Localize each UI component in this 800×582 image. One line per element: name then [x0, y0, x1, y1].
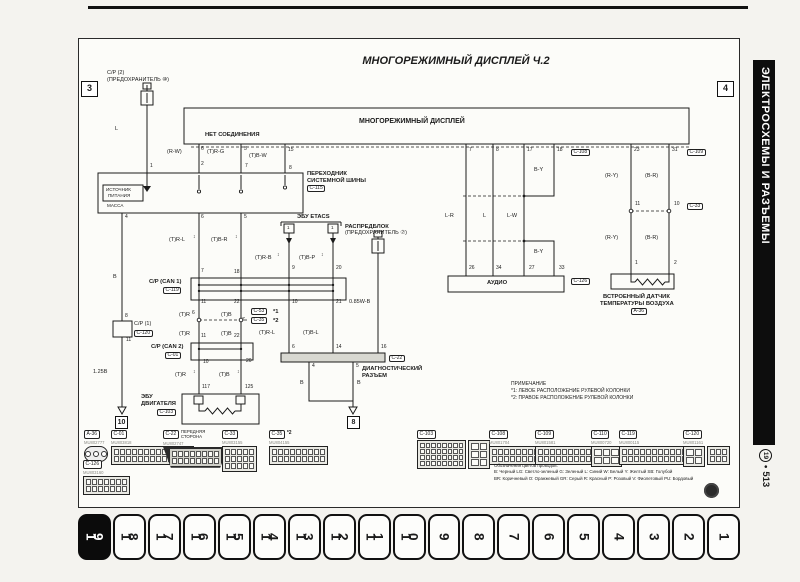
wire-label: 1: [287, 226, 290, 231]
connector-id: C-108: [489, 430, 508, 439]
connector-code: MU802777: [84, 440, 108, 445]
pin-number: 11: [635, 202, 640, 207]
connector-ref: C-35: [251, 317, 267, 324]
wire-label: (T)R: [179, 332, 190, 338]
connector-ref: C-53: [251, 308, 267, 315]
wire-label: C/P (CAN 1): [149, 279, 181, 285]
display-box-title: МНОГОРЕЖИМНЫЙ ДИСПЛЕЙ: [359, 118, 465, 125]
wire-label: L: [115, 127, 118, 133]
pin-number: 10: [674, 202, 680, 207]
pin-number: 16: [381, 345, 387, 350]
ground-symbol-2: [349, 407, 357, 414]
pin-number: 6: [201, 147, 204, 152]
connector-C-120: C-120MU801161: [683, 430, 730, 467]
wire-label: (R-Y): [605, 174, 618, 180]
diagram-frame: МНОГОРЕЖИМНЫЙ ДИСПЛЕЙ Ч.2: [78, 38, 740, 508]
connector-ref: C-109: [687, 149, 706, 156]
page-tab-13: 13: [288, 514, 321, 560]
pin-number: 26: [469, 266, 475, 271]
display-box: [184, 108, 689, 144]
connector-id: C-126: [83, 460, 102, 469]
connector-pictogram: [222, 446, 257, 472]
connector-C-35: C-35*2MU804155: [269, 430, 328, 465]
wire-label: 1.25B: [93, 370, 107, 376]
page-reference: 19 • 513: [752, 449, 776, 509]
pin-number: 8: [125, 314, 128, 319]
connector-ref: A-36: [631, 308, 647, 315]
wire-label: (T)R: [175, 373, 186, 379]
pin-number: 7: [242, 318, 245, 323]
connector-note-ref: *2: [287, 430, 292, 436]
wire-label: (T)R-L: [169, 238, 185, 244]
pin-number: 4: [125, 215, 128, 220]
pin-number: 11: [126, 338, 131, 343]
connector-ref: C-126: [571, 278, 590, 285]
pin-number: 6: [201, 215, 204, 220]
wire-label: ↕: [237, 370, 240, 375]
wire-label: ТЕМПЕРАТУРЫ ВОЗДУХА: [600, 301, 674, 307]
cp1-box: [113, 321, 132, 337]
page-tab-6: 6: [532, 514, 565, 560]
chapter-number-circle: 19: [759, 449, 772, 462]
wire-label: L: [483, 214, 486, 220]
connector-C-126: C-126MU803160: [83, 460, 130, 495]
pin-number: 27: [529, 266, 535, 271]
grid-ref: 10: [115, 416, 128, 429]
connector-id: C-109: [535, 430, 554, 439]
pin-number: 7: [245, 164, 248, 169]
pin-number: 9: [292, 266, 295, 271]
pin-number: 17: [527, 148, 533, 153]
connector-code: MU803155: [222, 440, 257, 445]
pin-number: 21: [336, 300, 342, 305]
grid-ref: 4: [717, 81, 734, 97]
wire-label: МАССА: [107, 204, 123, 209]
wire-label: ↕: [235, 235, 238, 240]
page-tab-18: 18: [113, 514, 146, 560]
wire-label: B-Y: [534, 168, 543, 174]
page-tab-3: 3: [637, 514, 670, 560]
pin-number: 20: [336, 266, 342, 271]
page-tab-5: 5: [567, 514, 600, 560]
connector-id: A-36: [84, 430, 100, 439]
connector-pictogram: [163, 447, 228, 468]
wire-label: (B-R): [645, 174, 658, 180]
air-temp-sensor-box: [611, 274, 674, 289]
pin-number: 1: [635, 261, 638, 266]
wire-label: НЕТ СОЕДИНЕНИЯ: [205, 132, 260, 138]
pin-number: 117: [202, 385, 210, 390]
wire-label: (ПРЕДОХРАНИТЕЛЬ ⑦): [345, 231, 407, 237]
connector-code: MU803160: [83, 470, 130, 475]
pin-number: 11: [201, 300, 206, 305]
connector-id: C-103: [417, 430, 436, 439]
page-tab-2: 2: [672, 514, 705, 560]
wire-label: C/P (CAN 2): [151, 344, 183, 350]
wire-label: B: [357, 381, 361, 387]
diagnostic-connector-strip: [281, 353, 385, 362]
connector-pictogram: [269, 446, 328, 465]
connector-code: MU800720: [591, 440, 622, 445]
grid-ref: 3: [81, 81, 98, 97]
top-rule: [88, 6, 748, 9]
wire-label: (T)B-L: [303, 331, 319, 337]
wire-label: ↕: [193, 370, 196, 375]
note-title: ПРИМЕЧАНИЕ: [511, 381, 633, 388]
page-tab-15: 15: [218, 514, 251, 560]
wire-label: (T)B: [221, 313, 232, 319]
pin-number: 23: [634, 148, 640, 153]
pin-number: 6: [192, 311, 195, 316]
page-tab-10: 10: [393, 514, 426, 560]
connector-ref: C-120: [134, 330, 153, 337]
page-tab-16: 16: [183, 514, 216, 560]
manual-page: МНОГОРЕЖИМНЫЙ ДИСПЛЕЙ Ч.2: [0, 0, 800, 582]
wire-label: (T)R-G: [207, 150, 224, 156]
wire-label: *2: [273, 318, 278, 324]
wire-label: РАЗЪЕМ: [362, 373, 387, 379]
can2-box: [191, 343, 253, 360]
pin-number: 31: [672, 148, 678, 153]
chapter-sidebar-label: ЭЛЕКТРОСХЕМЫ И РАЗЪЕМЫ: [759, 67, 771, 244]
page-tab-17: 17: [148, 514, 181, 560]
connector-code: MU802747: [163, 441, 228, 446]
pin-number: 34: [496, 266, 502, 271]
pin-number: 8: [496, 148, 499, 153]
connector-ref: C-22: [389, 355, 405, 362]
wire-label: (R-W): [167, 150, 182, 156]
wire-color-legend: Обозначения цветов проводов: B: Черный L…: [494, 463, 729, 482]
chapter-sidebar: ЭЛЕКТРОСХЕМЫ И РАЗЪЕМЫ: [753, 60, 775, 445]
wire-label: ЭБУ ETACS: [297, 214, 330, 220]
pin-number: 2: [201, 162, 204, 167]
page-tab-9: 9: [428, 514, 461, 560]
page-tab-14: 14: [253, 514, 286, 560]
wire-label: 0.85W-B: [349, 300, 370, 306]
wire-label: ↕: [277, 253, 280, 258]
connector-id: C-01: [111, 430, 127, 439]
connector-id: C-33: [222, 430, 238, 439]
connector-id: C-120: [683, 430, 702, 439]
page-tab-11: 11: [358, 514, 391, 560]
wire-label: C/P (1): [134, 322, 151, 328]
connector-ref: C-01: [165, 352, 181, 359]
connector-C-103: C-103: [417, 430, 490, 469]
connector-C-33: C-33MU803155: [222, 430, 257, 472]
wire-label: B: [113, 275, 117, 281]
pin-number: 22: [234, 300, 240, 305]
wire-label: 1: [331, 226, 334, 231]
wire-label: B-Y: [534, 250, 543, 256]
pin-number: 8: [289, 166, 292, 171]
page-tab-1: 1: [707, 514, 740, 560]
pin-number: 10: [292, 300, 298, 305]
page-tab-12: 12: [323, 514, 356, 560]
ground-symbol: [118, 407, 126, 414]
page-tab-7: 7: [497, 514, 530, 560]
wire-label: ВСТРОЕННЫЙ ДАТЧИК: [603, 294, 670, 300]
page-tab-19: 19: [78, 514, 111, 560]
wire-label: (ПРЕДОХРАНИТЕЛЬ ⑩): [107, 78, 169, 84]
brand-logo-icon: [704, 483, 719, 498]
diode-symbol: [143, 186, 151, 192]
pin-number: 5: [244, 215, 247, 220]
pin-number: 22: [234, 334, 240, 339]
wire-label: ПЕРЕХОДНИК: [307, 171, 347, 177]
pin-number: 15: [288, 148, 294, 153]
wire-label: (T)R: [179, 313, 190, 319]
connector-A-36: A-36MU802777: [84, 430, 108, 462]
page-ref-number: 513: [760, 471, 771, 487]
connector-C-110: C-110MU800720: [591, 430, 622, 467]
pin-number: 5: [356, 364, 359, 369]
wire-label: (T)B: [221, 332, 232, 338]
connector-code: MU804155: [269, 440, 328, 445]
grid-ref: 8: [347, 416, 360, 429]
wire-label: (T)R-B: [255, 256, 272, 262]
wire-label: (T)R-L: [259, 331, 275, 337]
connector-ref: C-108: [571, 149, 590, 156]
wire-label: ПИТАНИЯ: [108, 194, 130, 199]
wire-label: (T)B-W: [249, 154, 267, 160]
pin-number: 18: [234, 270, 240, 275]
pin-number: 1: [150, 164, 153, 169]
wire-label: L-W: [507, 214, 517, 220]
page-index-tabs: 19181716151413121110987654321: [78, 514, 740, 560]
wire-label: ЭБУ: [141, 394, 153, 400]
note-block: ПРИМЕЧАНИЕ *1: ЛЕВОЕ РАСПОЛОЖЕНИЕ РУЛЕВО…: [511, 381, 633, 401]
pin-number: 4: [312, 364, 315, 369]
wire-label: ДИАГНОСТИЧЕСКИЙ: [362, 366, 422, 372]
wire-label: (B-R): [645, 236, 658, 242]
wire-label: ↕: [321, 253, 324, 258]
audio-box-title: АУДИО: [487, 280, 507, 286]
connector-ref: C-115: [307, 185, 325, 192]
connector-ref: C-119: [163, 287, 181, 294]
resistor-symbol: [635, 279, 665, 285]
note-line: *2: ПРАВОЕ РАСПОЛОЖЕНИЕ РУЛЕВОЙ КОЛОНКИ: [511, 395, 633, 402]
pin-number: 6: [292, 345, 295, 350]
connector-note: ПЕРЕДНЯЯ СТОРОНА: [181, 430, 213, 440]
connector-pictogram: [417, 440, 490, 469]
connector-id: C-35: [269, 430, 285, 439]
pin-number: 14: [336, 345, 342, 350]
pin-number: 5: [244, 147, 247, 152]
pin-number: 33: [559, 266, 565, 271]
connector-ref: C-103: [157, 409, 176, 416]
pin-number: 11: [201, 334, 206, 339]
connector-ref: C-33: [687, 203, 703, 210]
wire-label: L-R: [445, 214, 454, 220]
wire-label: *1: [273, 309, 278, 315]
wire-label: (R-Y): [605, 236, 618, 242]
can1-box: [191, 278, 346, 300]
pin-number: 18: [557, 148, 563, 153]
wire-label: ДВИГАТЕЛЯ: [141, 401, 176, 407]
wire-label: (T)B: [219, 373, 230, 379]
pin-number: 10: [203, 360, 209, 365]
connector-id: C-110: [591, 430, 609, 439]
pin-number: 2: [674, 261, 677, 266]
connector-id: C-22: [163, 430, 179, 439]
note-line: *1: ЛЕВОЕ РАСПОЛОЖЕНИЕ РУЛЕВОЙ КОЛОНКИ: [511, 388, 633, 395]
page-ref-dot: •: [760, 465, 771, 468]
connector-C-22: C-22ПЕРЕДНЯЯ СТОРОНАMU802747: [163, 430, 228, 468]
wire-label: СИСТЕМНОЙ ШИНЫ: [307, 178, 366, 184]
connector-pictogram: [83, 476, 130, 495]
wire-label: B: [300, 381, 304, 387]
legend-line: BR: Коричневый O: Оранжевый GR: Серый R:…: [494, 476, 729, 482]
pin-number: 20: [246, 359, 252, 364]
wire-label: C/P (2): [107, 71, 124, 77]
pin-number: 125: [245, 385, 253, 390]
connector-id: C-119: [619, 430, 637, 439]
wire-label: (T)B-R: [211, 238, 228, 244]
pin-number: 7: [201, 269, 204, 274]
pin-number: 7: [469, 148, 472, 153]
page-tab-4: 4: [602, 514, 635, 560]
page-tab-8: 8: [462, 514, 495, 560]
wire-label: ↕: [193, 235, 196, 240]
resistor-symbol-2: [205, 408, 235, 414]
connector-code: MU801161: [683, 440, 730, 445]
wire-label: (T)B-P: [299, 256, 315, 262]
